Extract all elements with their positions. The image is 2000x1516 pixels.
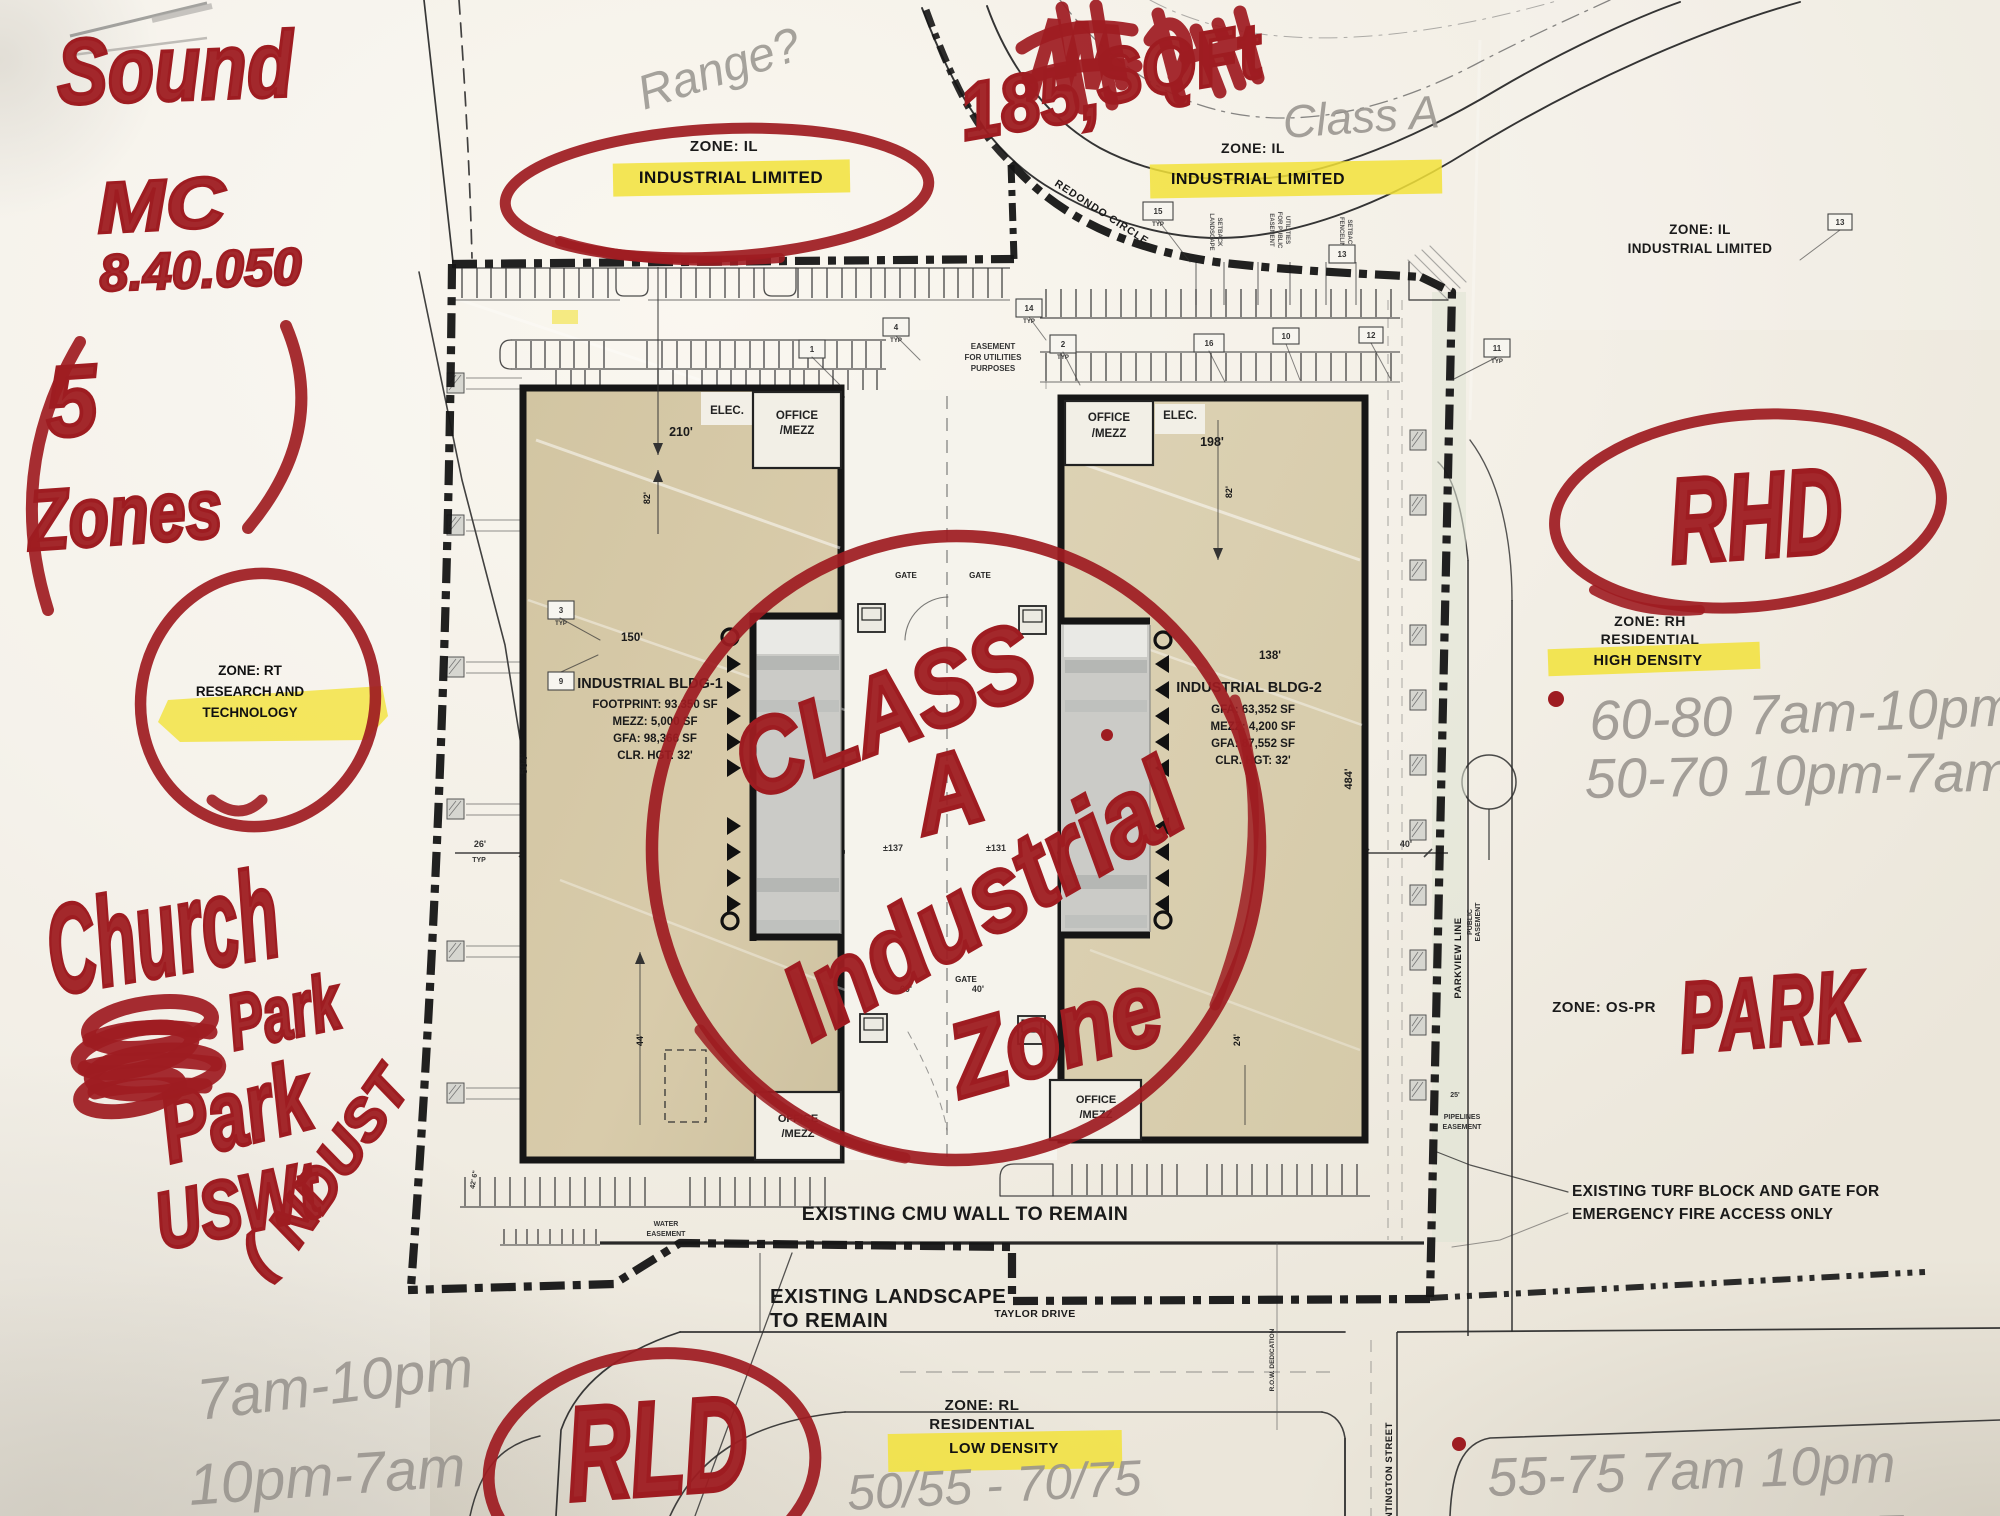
- svg-text:PIPELINES: PIPELINES: [1444, 1114, 1481, 1121]
- svg-text:GATE: GATE: [895, 571, 917, 580]
- svg-text:PURPOSES: PURPOSES: [971, 364, 1016, 373]
- svg-text:ZONE: RL: ZONE: RL: [945, 1397, 1020, 1414]
- svg-text:MEZZ: 4,200 SF: MEZZ: 4,200 SF: [1211, 721, 1296, 733]
- svg-text:198': 198': [1200, 435, 1224, 449]
- svg-text:OFFICE: OFFICE: [776, 410, 818, 422]
- svg-text:9: 9: [559, 677, 564, 686]
- svg-text:82': 82': [1224, 486, 1234, 498]
- svg-text:ELEC.: ELEC.: [1163, 410, 1197, 422]
- svg-text:WATER: WATER: [654, 1221, 679, 1228]
- svg-text:150': 150': [621, 632, 643, 644]
- svg-text:ZONE: IL: ZONE: IL: [690, 138, 758, 155]
- svg-text:EASEMENT: EASEMENT: [647, 1231, 687, 1238]
- svg-text:TYP: TYP: [1491, 359, 1503, 365]
- svg-text:GFA: 98,366 SF: GFA: 98,366 SF: [613, 733, 697, 745]
- svg-text:2: 2: [1061, 340, 1066, 349]
- svg-text:EASEMENT: EASEMENT: [1475, 902, 1482, 942]
- svg-text:TO REMAIN: TO REMAIN: [770, 1309, 888, 1332]
- svg-text:EXISTING TURF BLOCK AND GATE F: EXISTING TURF BLOCK AND GATE FOR: [1572, 1183, 1880, 1200]
- svg-text:3: 3: [559, 606, 564, 615]
- svg-text:82': 82': [642, 492, 652, 504]
- svg-text:INDUSTRIAL BLDG-2: INDUSTRIAL BLDG-2: [1176, 680, 1322, 696]
- svg-text:50-70 10pm-7am: 50-70 10pm-7am: [1584, 740, 2000, 810]
- svg-text:HIGH DENSITY: HIGH DENSITY: [1593, 653, 1702, 669]
- svg-text:ELEC.: ELEC.: [710, 405, 744, 417]
- svg-text:138': 138': [1259, 650, 1281, 662]
- svg-text:TYP: TYP: [890, 338, 902, 344]
- svg-text:26': 26': [474, 839, 486, 849]
- svg-text:25': 25': [1450, 1092, 1460, 1099]
- svg-text:40': 40': [1400, 839, 1412, 849]
- svg-text:CLR. HGT: 32': CLR. HGT: 32': [617, 750, 693, 762]
- svg-text:ZONE: OS-PR: ZONE: OS-PR: [1552, 999, 1656, 1016]
- svg-text:RESIDENTIAL: RESIDENTIAL: [929, 1416, 1035, 1433]
- svg-text:484': 484': [1343, 768, 1355, 789]
- svg-text:OFFICE: OFFICE: [1076, 1094, 1116, 1106]
- svg-text:SETBACK: SETBACK: [1216, 217, 1222, 247]
- svg-text:GATE: GATE: [969, 571, 991, 580]
- svg-text:Sound: Sound: [55, 12, 297, 124]
- svg-text:TYP: TYP: [555, 621, 567, 627]
- svg-text:15: 15: [1154, 207, 1163, 216]
- svg-text:R.O.W. DEDICATION: R.O.W. DEDICATION: [1269, 1328, 1276, 1391]
- svg-text:EXISTING CMU WALL TO REMAIN: EXISTING CMU WALL TO REMAIN: [802, 1203, 1128, 1225]
- svg-text:8.40.050: 8.40.050: [98, 238, 302, 303]
- svg-text:RHD: RHD: [1664, 443, 1846, 589]
- svg-text:MC: MC: [95, 162, 229, 248]
- svg-text:12: 12: [1367, 331, 1376, 340]
- svg-text:13: 13: [1836, 218, 1845, 227]
- svg-text:16: 16: [1205, 339, 1214, 348]
- svg-text:PARK: PARK: [1676, 949, 1870, 1073]
- svg-text:14: 14: [1025, 304, 1034, 313]
- svg-text:INDUSTRIAL LIMITED: INDUSTRIAL LIMITED: [1171, 171, 1345, 188]
- svg-text:EASEMENT: EASEMENT: [1268, 213, 1274, 247]
- svg-text:PARKVIEW LINE: PARKVIEW LINE: [1453, 917, 1464, 998]
- svg-text:FOR UTILITIES: FOR UTILITIES: [965, 353, 1023, 362]
- svg-text:1: 1: [810, 345, 815, 354]
- svg-text:24': 24': [1232, 1034, 1242, 1046]
- svg-text:LANDSCAPE: LANDSCAPE: [1208, 213, 1214, 250]
- svg-text:INDUSTRIAL LIMITED: INDUSTRIAL LIMITED: [1628, 241, 1773, 256]
- svg-text:4: 4: [894, 323, 899, 332]
- svg-text:/MEZZ: /MEZZ: [780, 425, 815, 437]
- svg-text:OFFICE: OFFICE: [1088, 412, 1130, 424]
- svg-text:EMERGENCY FIRE ACCESS ONLY: EMERGENCY FIRE ACCESS ONLY: [1572, 1206, 1834, 1223]
- svg-text:10: 10: [1282, 332, 1291, 341]
- svg-text:UTILITIES: UTILITIES: [1284, 216, 1290, 244]
- svg-text:11: 11: [1493, 344, 1502, 353]
- svg-text:40': 40': [972, 984, 984, 994]
- svg-text:ZONE: RT: ZONE: RT: [218, 663, 282, 678]
- svg-text:FOR PUBLIC: FOR PUBLIC: [1276, 212, 1282, 249]
- svg-text:ZONE: IL: ZONE: IL: [1221, 140, 1285, 156]
- svg-text:GFA: 87,552 SF: GFA: 87,552 SF: [1211, 738, 1295, 750]
- svg-text:/MEZZ: /MEZZ: [1092, 428, 1127, 440]
- svg-text:HUNTINGTON STREET: HUNTINGTON STREET: [1384, 1422, 1395, 1516]
- svg-text:13: 13: [1338, 250, 1347, 259]
- svg-text:ZONE: IL: ZONE: IL: [1669, 222, 1731, 237]
- svg-text:EXISTING LANDSCAPE: EXISTING LANDSCAPE: [770, 1285, 1006, 1308]
- svg-text:INDUSTRIAL LIMITED: INDUSTRIAL LIMITED: [639, 168, 823, 187]
- svg-text:Zones: Zones: [23, 461, 225, 569]
- svg-text:EASEMENT: EASEMENT: [971, 342, 1016, 351]
- svg-text:PUBLIC: PUBLIC: [1467, 909, 1474, 935]
- svg-text:5: 5: [42, 344, 102, 458]
- svg-text:±137: ±137: [883, 843, 903, 853]
- svg-text:TECHNOLOGY: TECHNOLOGY: [202, 705, 297, 720]
- svg-text:Class A: Class A: [1281, 85, 1441, 148]
- svg-text:FOOTPRINT: 93,350 SF: FOOTPRINT: 93,350 SF: [592, 699, 717, 711]
- svg-text:RESEARCH AND: RESEARCH AND: [196, 684, 305, 699]
- svg-text:TAYLOR DRIVE: TAYLOR DRIVE: [994, 1308, 1075, 1320]
- svg-text:RLD: RLD: [562, 1368, 753, 1516]
- svg-text:EASEMENT: EASEMENT: [1443, 1124, 1483, 1131]
- svg-text:210': 210': [669, 425, 693, 439]
- svg-text:504': 504': [518, 753, 530, 774]
- svg-text:TYP: TYP: [472, 857, 486, 864]
